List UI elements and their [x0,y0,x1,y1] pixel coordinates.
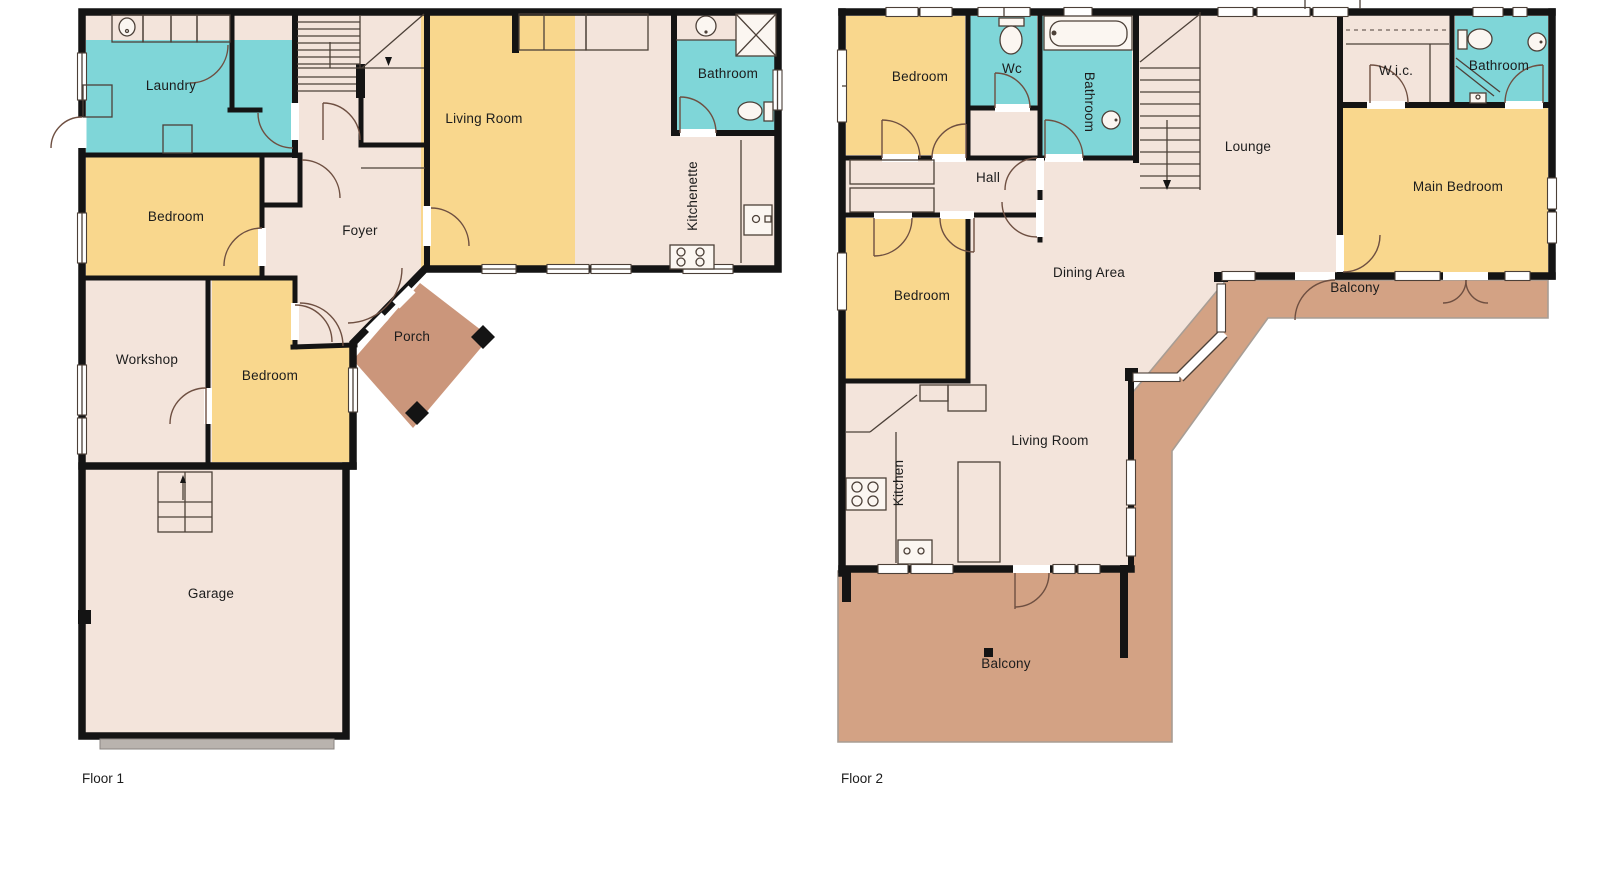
label-main-bedroom: Main Bedroom [1413,179,1503,194]
room-laundry [86,40,293,154]
label-lounge: Lounge [1225,139,1271,154]
toilet-icon-wc [1000,26,1022,54]
floor2-plan: Bedroom Wc Bathroom Hall Lounge W.i.c. B… [838,0,1557,786]
toilet-icon-right [1468,29,1492,49]
floorplan-page: Laundry Bedroom Foyer Living Room Bathro… [0,0,1600,880]
kitchen-sink-icon [744,205,772,235]
label-living-f2: Living Room [1011,433,1088,448]
label-kitchenette: Kitchenette [685,161,700,231]
room-garage [82,466,346,736]
label-bathroom-right-f2: Bathroom [1469,58,1529,73]
label-wc: Wc [1002,61,1022,76]
label-kitchen: Kitchen [891,460,906,506]
label-balcony-bottom: Balcony [981,656,1030,671]
floor2-caption: Floor 2 [841,771,883,786]
label-bedroom-top-f2: Bedroom [892,69,948,84]
label-dining: Dining Area [1053,265,1125,280]
label-laundry: Laundry [146,78,196,93]
room-bedroom-top-f2 [846,16,965,155]
label-bedroom-top-f1: Bedroom [148,209,204,224]
label-bedroom-mid-f1: Bedroom [242,368,298,383]
label-bathroom-left-f2: Bathroom [1082,72,1097,132]
label-foyer: Foyer [342,223,378,238]
label-wic: W.i.c. [1379,63,1413,78]
label-workshop: Workshop [116,352,178,367]
label-bedroom-mid-f2: Bedroom [894,288,950,303]
garage-door [100,739,334,749]
label-porch: Porch [394,329,430,344]
balcony-wall-stub-right [1120,565,1128,658]
balcony-wall-stub-left [842,569,851,602]
stove-icon [670,245,714,269]
label-hall: Hall [976,170,1000,185]
wc-fixtures [999,18,1024,54]
label-garage: Garage [188,586,234,601]
floorplan-canvas: Laundry Bedroom Foyer Living Room Bathro… [0,0,1600,880]
toilet-icon [738,102,762,120]
stove-icon-f2 [846,478,886,510]
floor1-plan: Laundry Bedroom Foyer Living Room Bathro… [51,10,782,786]
floor1-caption: Floor 1 [82,771,124,786]
sink-icon-bath-right [1528,33,1546,51]
kitchen-sink-icon-f2 [898,540,932,564]
label-balcony-top: Balcony [1330,280,1379,295]
label-bathroom-f1: Bathroom [698,66,758,81]
garage-wall-stub [78,610,91,624]
label-living-f1: Living Room [445,111,522,126]
